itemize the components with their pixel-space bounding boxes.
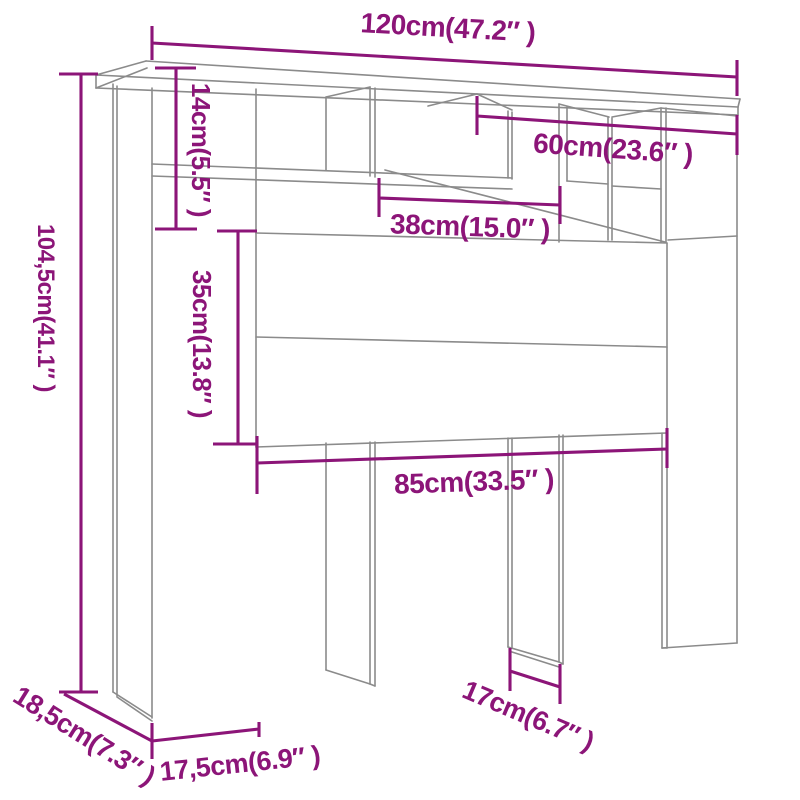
- dimension-segment: [152, 729, 259, 741]
- dimension-segment: [510, 671, 560, 687]
- dim-label-total-height: 104,5cm(41.1″ ): [33, 224, 57, 392]
- cabinet-edge: [567, 181, 608, 184]
- dimension-segment: [152, 43, 737, 77]
- cabinet-edge: [612, 186, 661, 189]
- diagram-canvas: [0, 0, 800, 800]
- dimension-segment: [477, 116, 737, 134]
- dimension-segment: [379, 198, 560, 205]
- cabinet-edge: [508, 647, 559, 662]
- cabinet-edge: [113, 692, 152, 717]
- dimension-segment: [257, 449, 667, 463]
- cabinet-edge: [668, 236, 737, 240]
- dim-label-panel-width: 85cm(33.5″ ): [394, 465, 555, 499]
- cabinet-edge: [326, 670, 370, 684]
- cabinet-edge: [662, 643, 737, 648]
- dimension-diagram: 120cm(47.2″ ) 14cm(5.5″ ) 60cm(23.6″ ) 3…: [0, 0, 800, 800]
- cabinet-edge: [326, 87, 370, 97]
- cabinet-edge: [96, 68, 147, 88]
- cabinet-edge: [256, 337, 667, 347]
- dim-label-panel-height: 35cm(13.8″ ): [189, 270, 215, 418]
- cabinet-edge: [96, 61, 146, 75]
- cabinet-edge: [117, 697, 152, 721]
- dim-label-inner-width: 38cm(15.0″ ): [390, 210, 551, 244]
- cabinet-edge: [477, 94, 512, 110]
- cabinet-edge: [738, 99, 740, 107]
- cabinet-edge: [256, 433, 667, 447]
- dim-label-shelf-height: 14cm(5.5″ ): [188, 83, 214, 217]
